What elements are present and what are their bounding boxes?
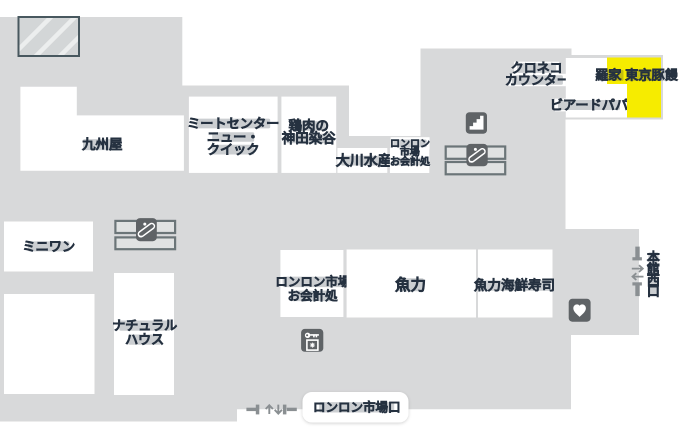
svg-text:ロンロン市場口: ロンロン市場口 <box>313 400 401 415</box>
svg-text:お会計処: お会計処 <box>288 288 339 303</box>
svg-text:魚力: 魚力 <box>395 275 426 294</box>
svg-text:ナチュラル: ナチュラル <box>112 318 177 333</box>
svg-text:神田染谷: 神田染谷 <box>282 130 336 146</box>
svg-text:カウンター: カウンター <box>505 72 570 87</box>
svg-text:ミニワン: ミニワン <box>22 239 75 254</box>
svg-text:ビアードパパ: ビアードパパ <box>550 98 628 113</box>
svg-text:口: 口 <box>647 284 660 299</box>
svg-text:お会計処: お会計処 <box>390 155 431 168</box>
svg-text:九州屋: 九州屋 <box>81 137 123 152</box>
svg-text:ロンロン市場: ロンロン市場 <box>275 274 351 289</box>
svg-text:羅家 東京豚饅: 羅家 東京豚饅 <box>595 66 679 82</box>
svg-text:ハウス: ハウス <box>125 332 164 347</box>
svg-text:魚力海鮮寿司: 魚力海鮮寿司 <box>474 277 555 293</box>
svg-text:大川水産: 大川水産 <box>336 152 392 168</box>
svg-text:クイック: クイック <box>207 142 260 157</box>
